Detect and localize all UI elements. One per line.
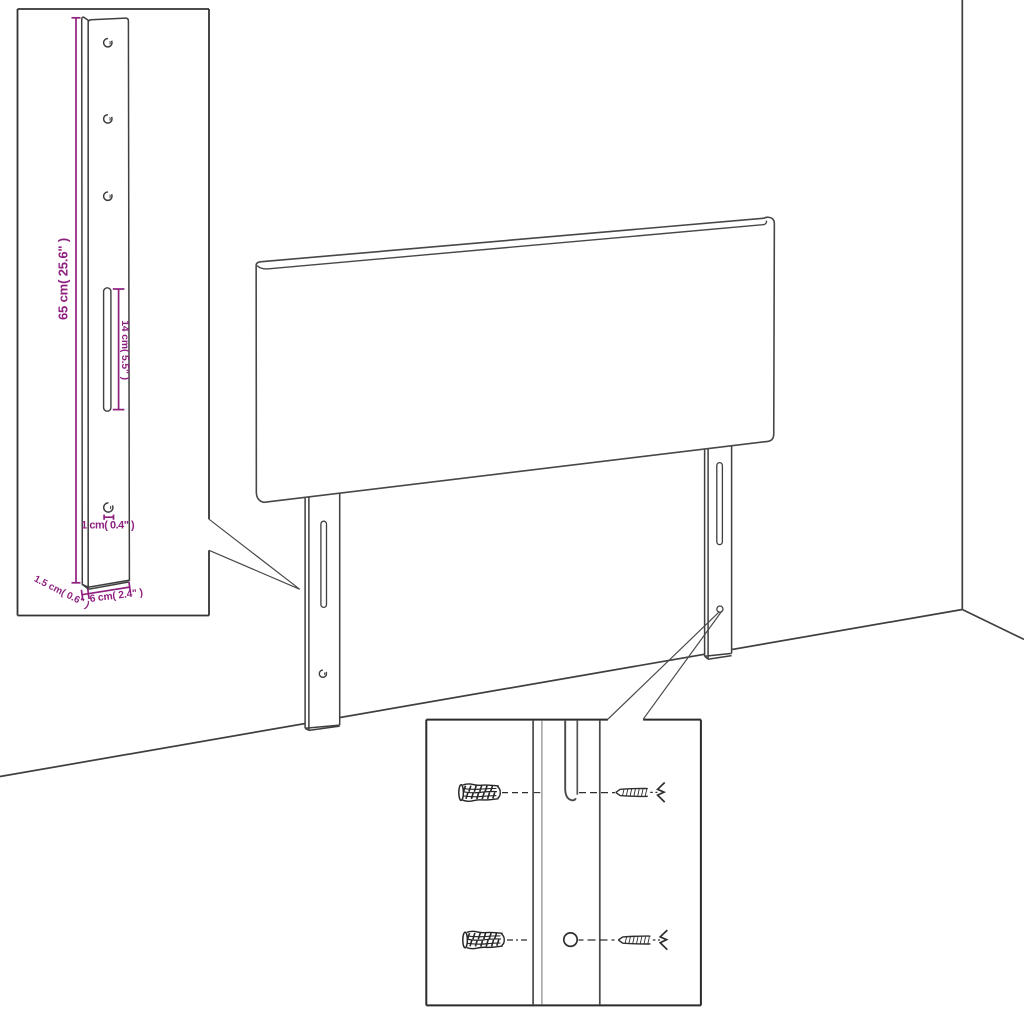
svg-text:14 cm( 5.5" ): 14 cm( 5.5" ) bbox=[119, 320, 130, 380]
svg-text:1 cm( 0.4" ): 1 cm( 0.4" ) bbox=[81, 519, 135, 531]
svg-text:6 cm( 2.4" ): 6 cm( 2.4" ) bbox=[89, 587, 143, 604]
svg-text:65 cm( 25.6" ): 65 cm( 25.6" ) bbox=[56, 238, 71, 320]
